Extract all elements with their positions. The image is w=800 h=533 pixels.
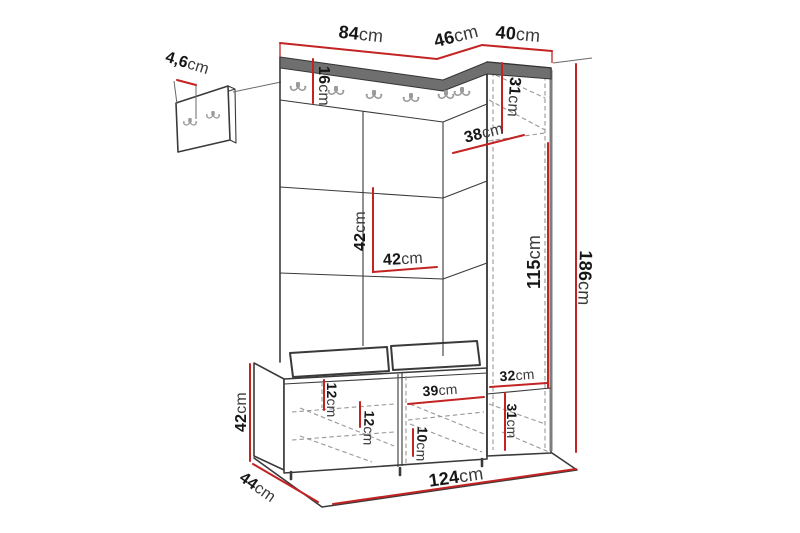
dim-label-bench-opening: 39cm xyxy=(422,382,458,398)
small-wall-panel xyxy=(174,81,281,152)
coat-hook-icon xyxy=(290,82,305,90)
dim-label-bench-inner: 12cm xyxy=(361,410,376,446)
dim-label-total-top-front: 84cm xyxy=(338,23,384,46)
dim-label-cabinet-inner-w: 32cm xyxy=(499,367,535,383)
dim-label-panel-square-h: 42cm xyxy=(353,211,369,251)
dim-label-door-height: 115cm xyxy=(525,235,543,289)
witness-lines xyxy=(553,58,592,63)
coat-hook-icon xyxy=(438,90,453,98)
coat-hook-icon xyxy=(454,87,469,95)
dim-label-total-height: 186cm xyxy=(575,250,595,306)
dim-label-bench-height: 42cm xyxy=(234,392,250,432)
dim-label-cabinet-top: 40cm xyxy=(495,23,541,45)
coat-hook-icon xyxy=(366,90,381,98)
dim-label-panel-square-w: 42cm xyxy=(383,251,424,269)
dim-label-bench-shelf: 10cm xyxy=(414,426,429,462)
dim-label-hook-rail-height: 16cm xyxy=(315,66,331,106)
wall-panel xyxy=(280,57,487,362)
diagram-canvas: 4,6cm 84cm 46cm 40cm 16cm 31cm 38cm 42cm… xyxy=(0,0,800,533)
dim-label-bench-top: 12cm xyxy=(325,382,339,417)
dim-label-cabinet-upper: 31cm xyxy=(504,77,523,118)
coat-hook-icon xyxy=(403,93,418,101)
dim-label-cabinet-lower: 31cm xyxy=(505,403,519,438)
